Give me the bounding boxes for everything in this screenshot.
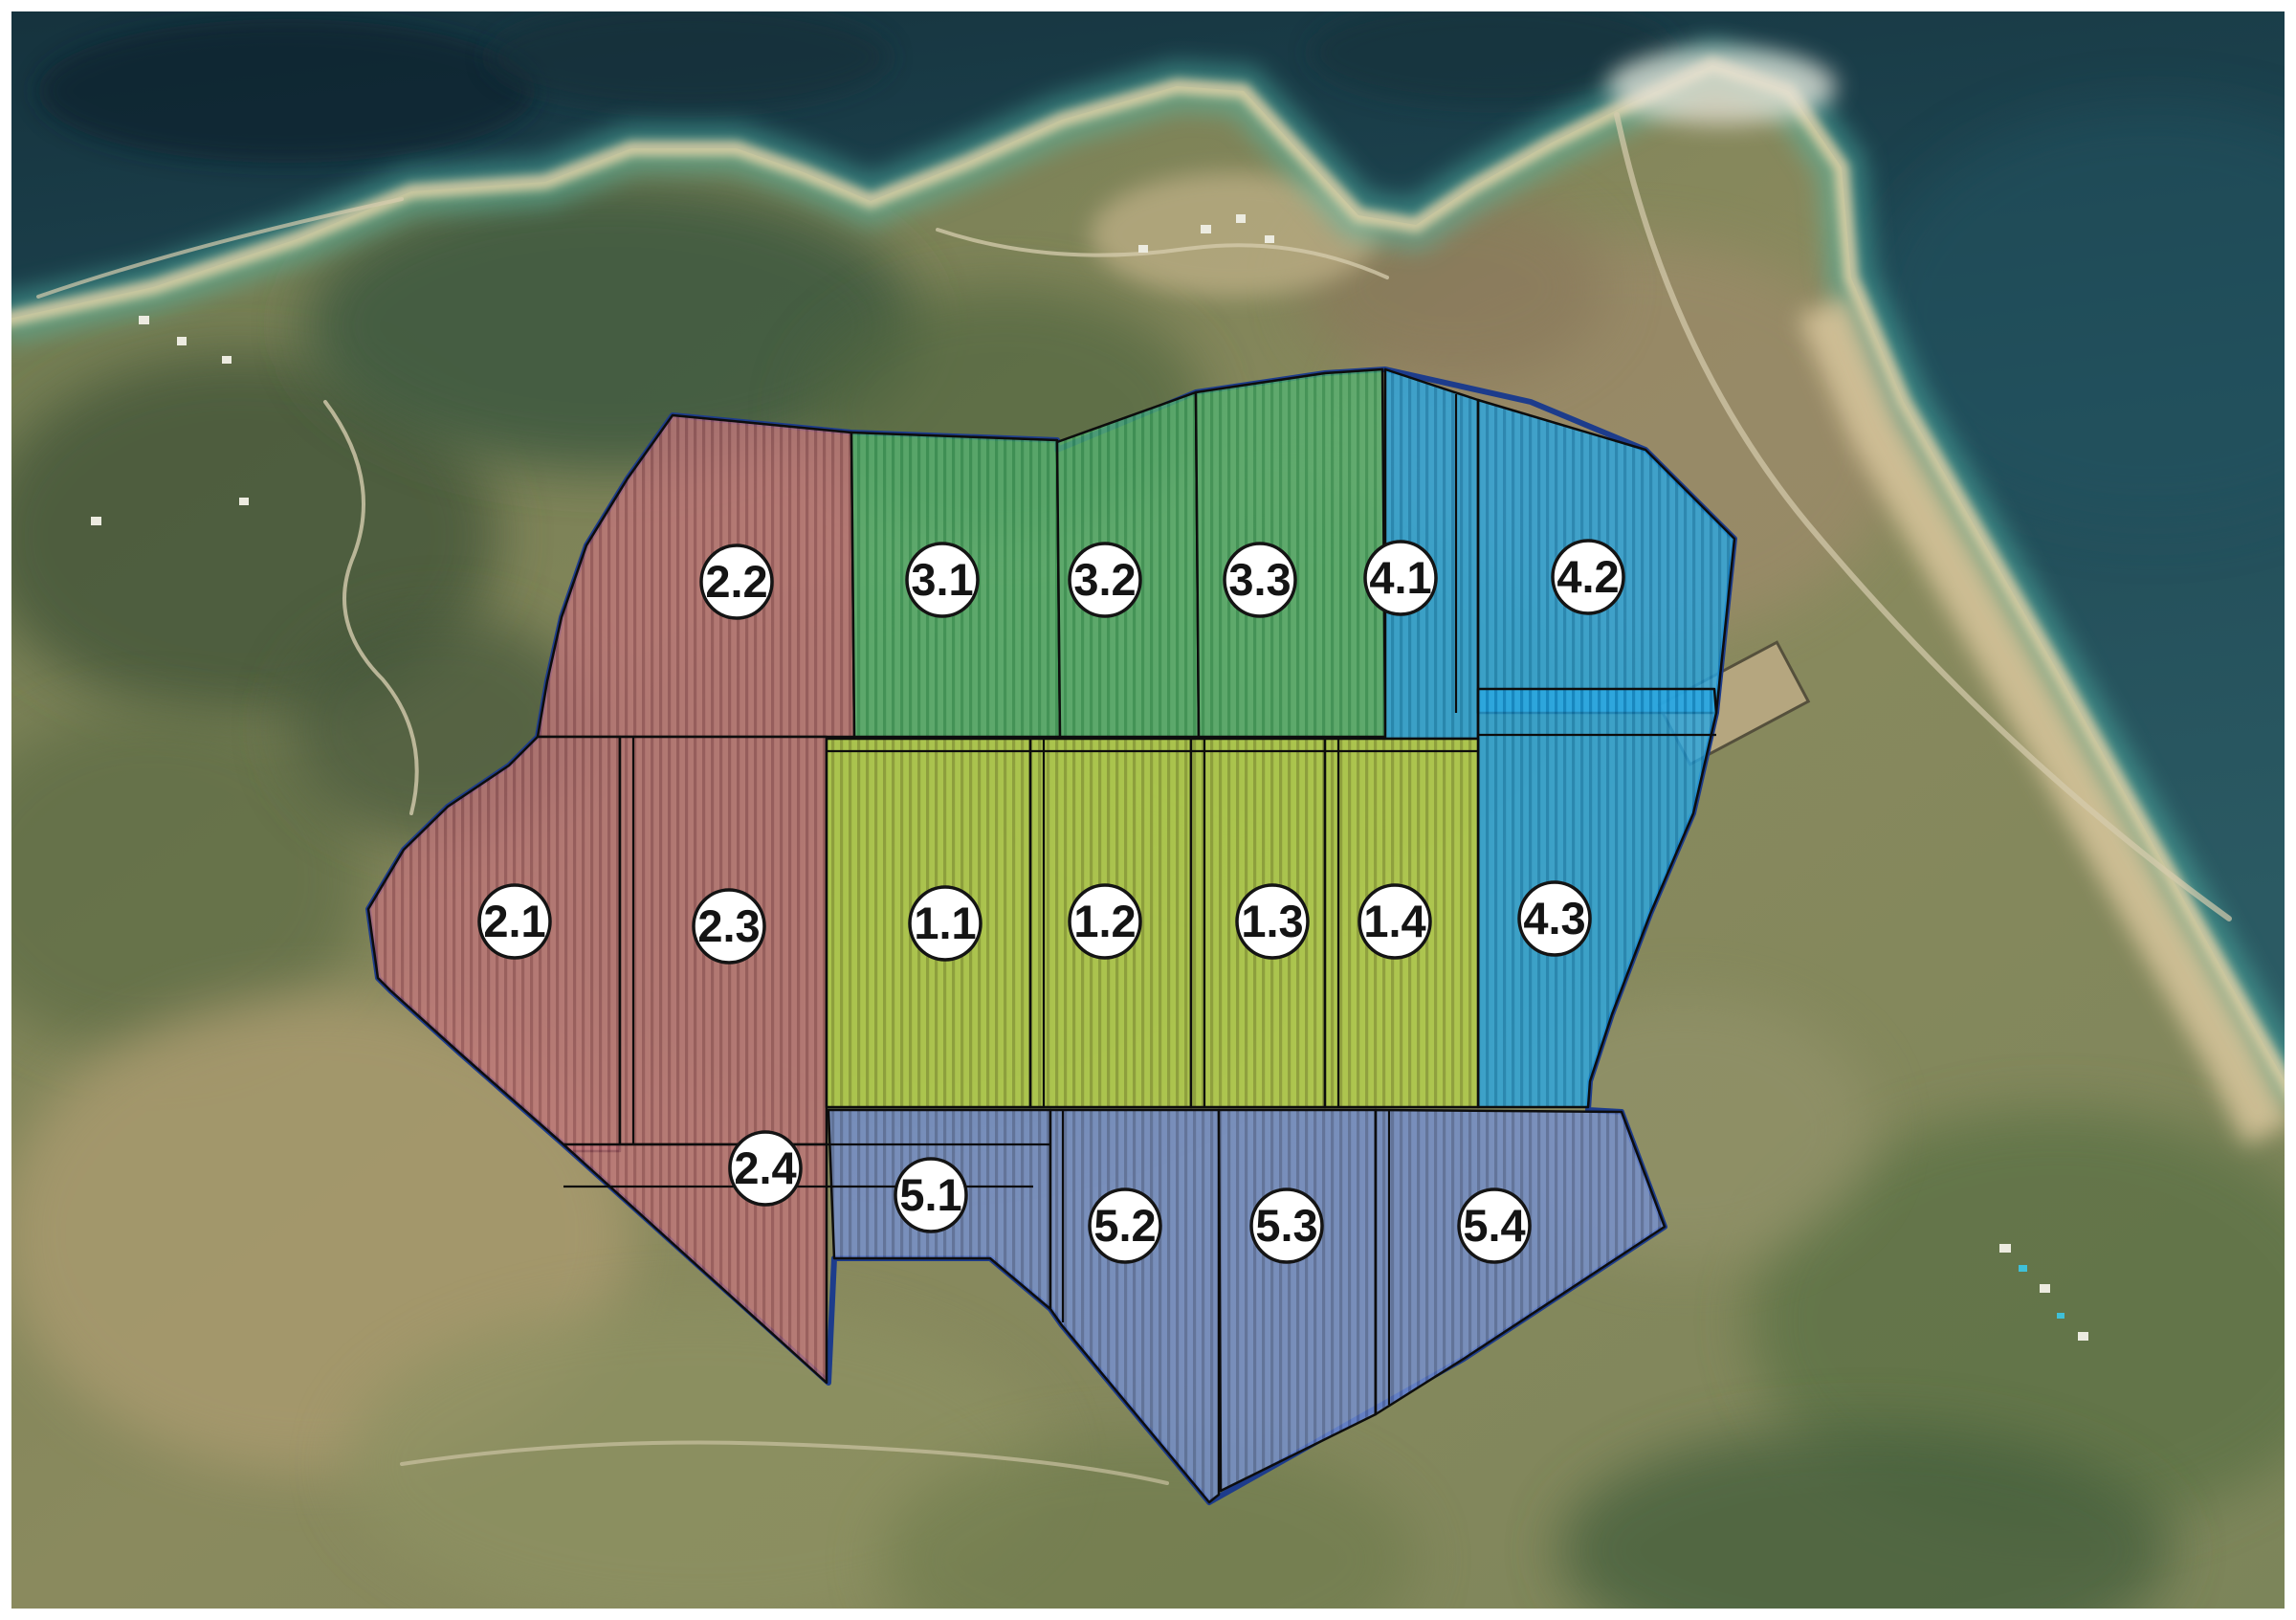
label-text: 4.1	[1369, 552, 1431, 603]
label-text: 1.1	[914, 898, 976, 948]
zone-label-2.3: 2.3	[694, 890, 764, 963]
deep-water-patch	[38, 19, 536, 163]
zone-label-5.2: 5.2	[1090, 1189, 1160, 1262]
label-text: 1.3	[1241, 896, 1303, 946]
label-text: 5.3	[1255, 1200, 1317, 1251]
building	[222, 356, 232, 364]
label-text: 5.1	[899, 1169, 961, 1220]
building	[1236, 214, 1246, 223]
building	[1265, 235, 1274, 243]
zone-3.3-area	[1196, 369, 1385, 737]
label-text: 2.3	[697, 900, 760, 951]
pool	[2057, 1313, 2064, 1319]
building	[1138, 245, 1148, 253]
label-text: 4.3	[1523, 893, 1585, 943]
zone-label-2.4: 2.4	[730, 1132, 801, 1205]
zone-label-1.2: 1.2	[1070, 885, 1140, 958]
building	[2040, 1284, 2050, 1293]
label-text: 5.2	[1093, 1200, 1156, 1251]
zone-label-4.1: 4.1	[1365, 542, 1436, 614]
zone-label-5.3: 5.3	[1251, 1189, 1322, 1262]
label-text: 4.2	[1556, 551, 1619, 602]
label-text: 1.2	[1073, 896, 1136, 946]
zone-label-2.1: 2.1	[479, 885, 550, 958]
zone-label-2.2: 2.2	[701, 545, 772, 618]
label-text: 3.3	[1228, 554, 1291, 605]
pool	[2019, 1265, 2027, 1272]
deep-water-patch	[488, 5, 890, 110]
label-text: 2.1	[483, 896, 545, 946]
zone-label-4.3: 4.3	[1519, 882, 1590, 955]
label-text: 3.2	[1073, 554, 1136, 605]
building	[2078, 1332, 2088, 1341]
zone-label-1.3: 1.3	[1237, 885, 1308, 958]
building	[91, 517, 101, 525]
label-text: 3.1	[911, 554, 973, 605]
zone-label-5.1: 5.1	[895, 1159, 966, 1232]
label-text: 1.4	[1363, 896, 1425, 946]
label-text: 2.2	[705, 556, 767, 607]
zone-label-1.1: 1.1	[910, 887, 981, 960]
zone-map-figure: 2.2 3.1 3.2 3.3 4.1 4.2 2.1 2.3	[0, 0, 2296, 1620]
zone-label-3.1: 3.1	[907, 544, 978, 616]
zone-label-3.3: 3.3	[1225, 544, 1295, 616]
building	[1999, 1244, 2011, 1253]
zone-label-1.4: 1.4	[1359, 885, 1430, 958]
building	[239, 498, 249, 505]
building	[1201, 225, 1211, 233]
zone-label-3.2: 3.2	[1070, 544, 1140, 616]
building	[177, 337, 187, 345]
label-text: 2.4	[734, 1143, 796, 1193]
white-cliffs	[1607, 48, 1837, 124]
map-canvas: 2.2 3.1 3.2 3.3 4.1 4.2 2.1 2.3	[0, 0, 2296, 1620]
label-text: 5.4	[1463, 1200, 1525, 1251]
zone-label-5.4: 5.4	[1459, 1189, 1530, 1262]
zone-label-4.2: 4.2	[1553, 541, 1623, 613]
building	[139, 316, 149, 324]
